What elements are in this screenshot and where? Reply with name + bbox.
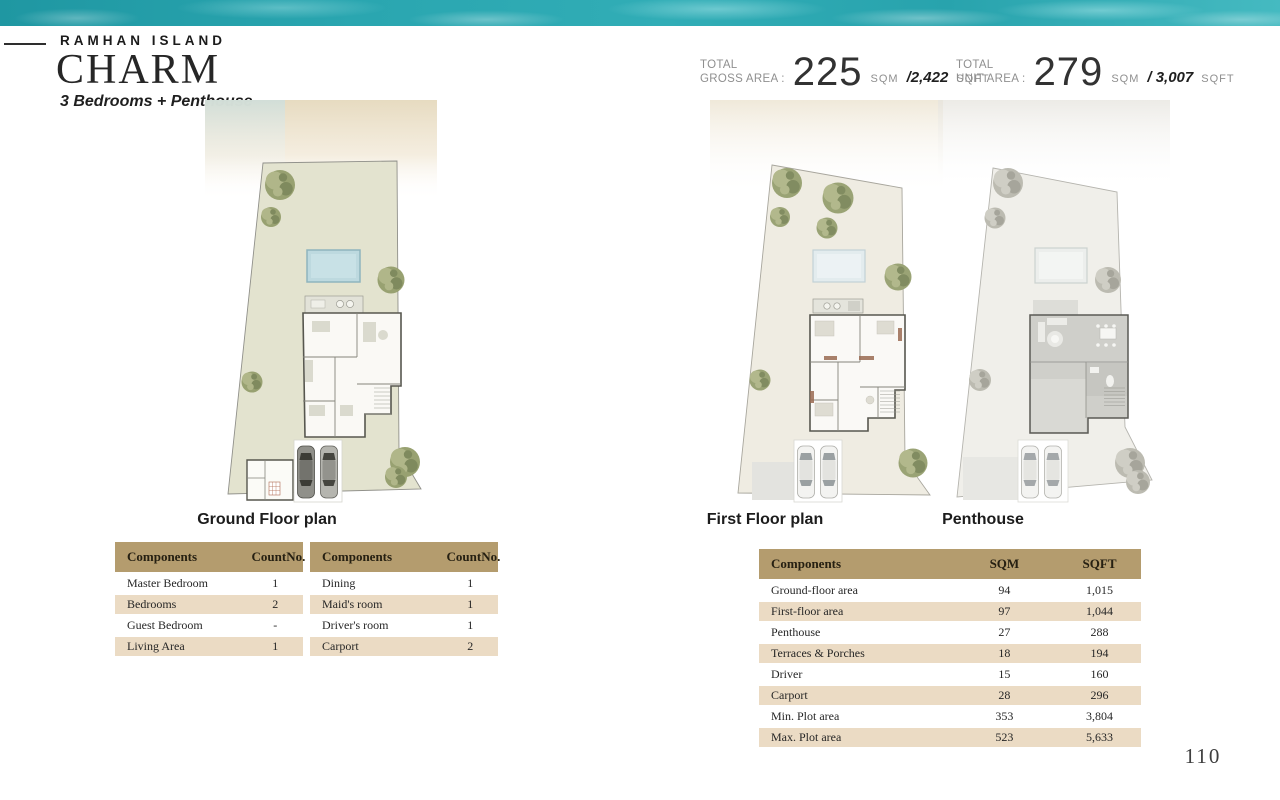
table-row: Terraces & Porches18194: [759, 644, 1141, 663]
car-icon: [821, 446, 838, 498]
brand-name: RAMHAN ISLAND: [60, 33, 226, 48]
table-cell: Bedrooms: [115, 595, 248, 614]
driver-annex: [247, 460, 293, 500]
table-cell: Min. Plot area: [759, 707, 951, 726]
table-cell: 288: [1058, 623, 1141, 642]
paved-slab: [963, 457, 1018, 500]
table-row: Guest Bedroom-: [115, 616, 303, 635]
table-cell: 1: [443, 574, 498, 593]
plan-label-first-floor: First Floor plan: [685, 511, 845, 529]
table-cell: -: [248, 616, 303, 635]
table-cell: 1: [443, 595, 498, 614]
column-header: CountNo.: [248, 542, 303, 572]
table-row: First-floor area971,044: [759, 602, 1141, 621]
column-header: SQM: [951, 549, 1058, 579]
table-cell: Ground-floor area: [759, 581, 951, 600]
paved-slab: [752, 462, 797, 500]
table-cell: 194: [1058, 644, 1141, 663]
car-icon: [321, 446, 338, 498]
table-cell: Carport: [310, 637, 443, 656]
column-header: Components: [759, 549, 951, 579]
water-banner-image: [0, 0, 1280, 26]
table-cell: 523: [951, 728, 1058, 747]
table-row: Penthouse27288: [759, 623, 1141, 642]
table-cell: Living Area: [115, 637, 248, 656]
stat-label-line: TOTAL: [700, 58, 785, 72]
stat-unit: SQM: [871, 73, 899, 87]
roof-terrace: [1033, 300, 1078, 315]
tree-icon: [385, 466, 407, 488]
table-cell: Driver: [759, 665, 951, 684]
tree-icon: [817, 218, 838, 239]
table-row: Driver's room1: [310, 616, 498, 635]
table-cell: Master Bedroom: [115, 574, 248, 593]
count-table-2: ComponentsCountNo.Dining1Maid's room1Dri…: [310, 540, 498, 658]
ground-floor-plan-illustration: [205, 100, 437, 508]
stat-label: TOTAL GROSS AREA :: [700, 58, 785, 87]
balcony: [813, 299, 863, 313]
tree-icon: [969, 369, 991, 391]
table-cell: Guest Bedroom: [115, 616, 248, 635]
stat-gross-area: TOTAL GROSS AREA : 225 SQM /2,422 SQFT: [700, 57, 990, 87]
table-cell: Terraces & Porches: [759, 644, 951, 663]
tree-icon: [885, 264, 912, 291]
house-floorplan: [810, 315, 905, 431]
table-cell: 15: [951, 665, 1058, 684]
first-floor-plan-illustration: [710, 100, 943, 508]
table-cell: 353: [951, 707, 1058, 726]
car-icon: [798, 446, 815, 498]
table-row: Master Bedroom1: [115, 574, 303, 593]
tree-icon: [1126, 470, 1150, 494]
table-cell: Dining: [310, 574, 443, 593]
carport: [1018, 440, 1068, 502]
table-row: Carport28296: [759, 686, 1141, 705]
stat-unit: SQM: [1111, 73, 1139, 87]
table-cell: 3,804: [1058, 707, 1141, 726]
penthouse-plan-illustration: [938, 100, 1170, 508]
count-table-1: ComponentsCountNo.Master Bedroom1Bedroom…: [115, 540, 303, 658]
table-cell: Driver's room: [310, 616, 443, 635]
column-header: CountNo.: [443, 542, 498, 572]
beach-gradient: [938, 100, 1170, 190]
table-cell: Max. Plot area: [759, 728, 951, 747]
pool: [307, 250, 360, 282]
tree-icon: [985, 208, 1006, 229]
stat-label-line: TOTAL: [956, 58, 1026, 72]
stat-label: TOTAL UNIT AREA :: [956, 58, 1026, 87]
table-row: Bedrooms2: [115, 595, 303, 614]
stat-label-line: GROSS AREA :: [700, 72, 785, 86]
stat-label-line: UNIT AREA :: [956, 72, 1026, 86]
column-header: Components: [310, 542, 443, 572]
column-header: Components: [115, 542, 248, 572]
stat-unit-area: TOTAL UNIT AREA : 279 SQM / 3,007 SQFT: [956, 57, 1235, 87]
plan-label-penthouse: Penthouse: [903, 511, 1063, 529]
table-row: Ground-floor area941,015: [759, 581, 1141, 600]
table-cell: 94: [951, 581, 1058, 600]
page-title: CHARM: [56, 48, 220, 92]
table-cell: First-floor area: [759, 602, 951, 621]
table-row: Max. Plot area5235,633: [759, 728, 1141, 747]
table-row: Dining1: [310, 574, 498, 593]
table-cell: 2: [443, 637, 498, 656]
area-table: ComponentsSQMSQFTGround-floor area941,01…: [759, 547, 1141, 749]
table-cell: 1,015: [1058, 581, 1141, 600]
table-row: Living Area1: [115, 637, 303, 656]
header-rule: [4, 43, 46, 45]
stat-value: 279: [1034, 57, 1104, 87]
stat-alt-value: /2,422: [907, 69, 949, 87]
stat-alt-value: / 3,007: [1147, 69, 1193, 87]
tree-icon: [265, 170, 295, 200]
pool: [1035, 248, 1087, 283]
table-cell: 18: [951, 644, 1058, 663]
column-header: SQFT: [1058, 549, 1141, 579]
tree-icon: [242, 372, 263, 393]
stat-unit: SQFT: [1201, 73, 1234, 87]
table-cell: Carport: [759, 686, 951, 705]
table-cell: 27: [951, 623, 1058, 642]
table-cell: 296: [1058, 686, 1141, 705]
tree-icon: [770, 207, 790, 227]
tree-icon: [1095, 267, 1121, 293]
table-cell: 1: [248, 637, 303, 656]
table-cell: 97: [951, 602, 1058, 621]
table-cell: 1,044: [1058, 602, 1141, 621]
tree-icon: [261, 207, 281, 227]
table-row: Maid's room1: [310, 595, 498, 614]
table-cell: 5,633: [1058, 728, 1141, 747]
table-cell: Penthouse: [759, 623, 951, 642]
carport: [294, 440, 342, 502]
table-cell: 1: [248, 574, 303, 593]
brochure-page: RAMHAN ISLAND CHARM 3 Bedrooms + Penthou…: [0, 0, 1280, 800]
house-floorplan: [1030, 300, 1128, 433]
carport: [794, 440, 842, 502]
car-icon: [298, 446, 315, 498]
car-icon: [1045, 446, 1062, 498]
table-cell: 2: [248, 595, 303, 614]
table-row: Driver15160: [759, 665, 1141, 684]
tree-icon: [993, 168, 1023, 198]
tree-icon: [750, 370, 771, 391]
pool: [813, 250, 865, 282]
stat-value: 225: [793, 57, 863, 87]
table-row: Carport2: [310, 637, 498, 656]
tree-icon: [823, 183, 854, 214]
tree-icon: [899, 449, 928, 478]
table-cell: 1: [443, 616, 498, 635]
car-icon: [1022, 446, 1039, 498]
plan-label-ground-floor: Ground Floor plan: [187, 511, 347, 529]
table-cell: 160: [1058, 665, 1141, 684]
table-row: Min. Plot area3533,804: [759, 707, 1141, 726]
table-cell: Maid's room: [310, 595, 443, 614]
tree-icon: [772, 168, 802, 198]
tree-icon: [378, 267, 405, 294]
table-cell: 28: [951, 686, 1058, 705]
terrace: [305, 296, 363, 313]
page-number: 110: [1168, 744, 1238, 769]
